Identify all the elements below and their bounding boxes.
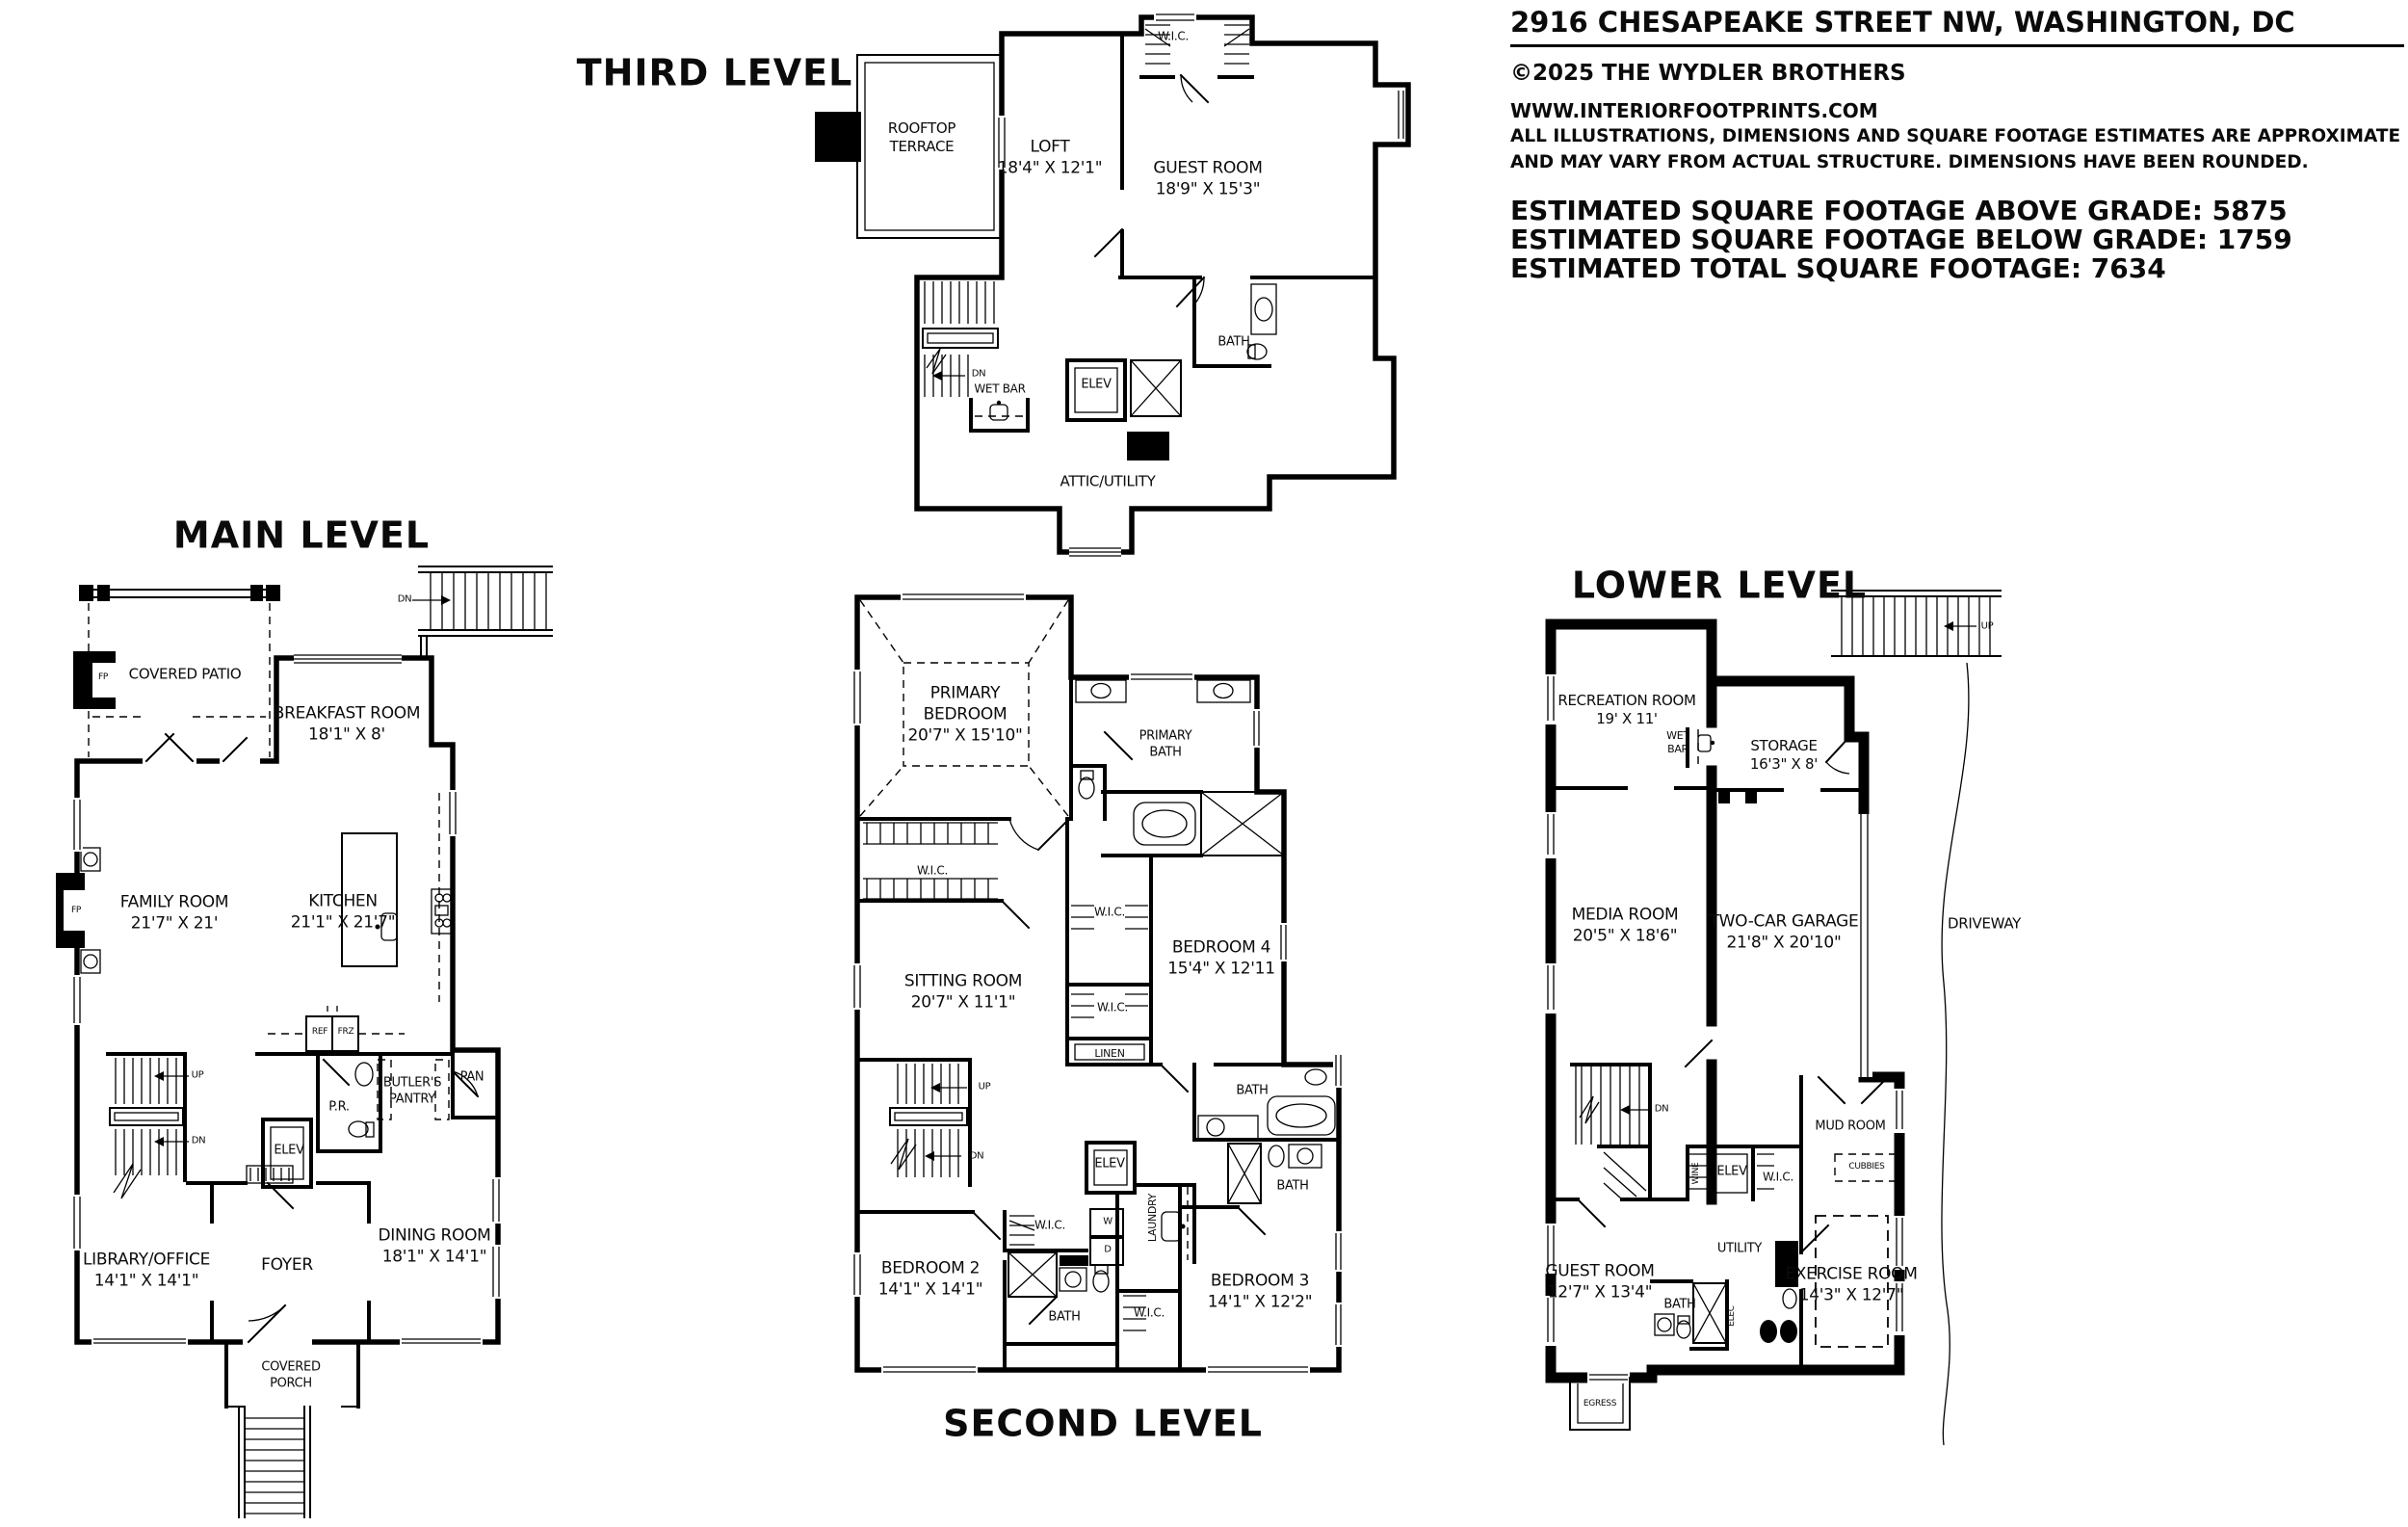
room-label-wic: W.I.C. bbox=[1094, 905, 1125, 919]
room-label-powder-room: P.R. bbox=[328, 1100, 349, 1117]
room-label-attic-utility: ATTIC/UTILITY bbox=[1060, 472, 1156, 490]
room-label-laundry: LAUNDRY bbox=[1146, 1194, 1160, 1242]
fireplace-label: FP bbox=[98, 672, 108, 684]
room-label-wic: W.I.C. bbox=[1034, 1218, 1065, 1232]
room-label-bath: BATH bbox=[1276, 1179, 1308, 1196]
area-label-driveway: DRIVEWAY bbox=[1948, 914, 2021, 933]
label-elec: ELEC bbox=[1727, 1305, 1739, 1326]
room-label-bath: BATH bbox=[1048, 1310, 1080, 1327]
room-label-rooftop-terrace: ROOFTOP TERRACE bbox=[888, 119, 955, 156]
room-label-wic: W.I.C. bbox=[1134, 1305, 1165, 1320]
room-label-covered-patio: COVERED PATIO bbox=[129, 665, 242, 683]
room-label-wic: W.I.C. bbox=[1158, 29, 1189, 43]
stair-label-up: UP bbox=[1981, 621, 1994, 634]
level-title-main: MAIN LEVEL bbox=[173, 513, 430, 560]
room-label-foyer: FOYER bbox=[261, 1255, 313, 1277]
room-labels-layer: THIRD LEVELROOFTOP TERRACELOFT 18'4" X 1… bbox=[0, 0, 2408, 1527]
room-label-sitting-room: SITTING ROOM 20'7" X 11'1" bbox=[904, 971, 1022, 1014]
stair-label-dn: DN bbox=[970, 1151, 984, 1164]
room-label-mud-room: MUD ROOM bbox=[1815, 1119, 1885, 1136]
room-label-primary-bedroom: PRIMARY BEDROOM 20'7" X 15'10" bbox=[908, 683, 1023, 746]
room-label-family-room: FAMILY ROOM 21'7" X 21' bbox=[120, 892, 228, 935]
room-label-kitchen: KITCHEN 21'1" X 21'7" bbox=[291, 891, 395, 934]
room-label-linen: LINEN bbox=[1094, 1047, 1124, 1061]
room-label-bedroom-2: BEDROOM 2 14'1" X 14'1" bbox=[878, 1258, 982, 1301]
level-title-second: SECOND LEVEL bbox=[943, 1401, 1263, 1448]
stair-label-up: UP bbox=[979, 1082, 991, 1094]
room-label-primary-bath: PRIMARY BATH bbox=[1139, 728, 1192, 760]
appliance-label-frz: FRZ bbox=[338, 1027, 354, 1039]
room-label-butlers-pantry: BUTLER'S PANTRY bbox=[383, 1075, 441, 1107]
room-label-wine: WINE bbox=[1691, 1163, 1703, 1185]
stair-label-dn: DN bbox=[972, 369, 986, 382]
room-label-pan: PAN bbox=[460, 1070, 484, 1087]
room-label-dining-room: DINING ROOM 18'1" X 14'1" bbox=[378, 1225, 490, 1268]
level-title-third: THIRD LEVEL bbox=[577, 50, 853, 97]
room-label-breakfast-room: BREAKFAST ROOM 18'1" X 8' bbox=[274, 703, 420, 746]
floor-plan-sheet: { "header": { "address": "2916 CHESAPEAK… bbox=[0, 0, 2408, 1527]
room-label-guest-room: GUEST ROOM 12'7" X 13'4" bbox=[1545, 1261, 1654, 1303]
label-cubbies: CUBBIES bbox=[1848, 1162, 1884, 1173]
room-label-two-car-garage: TWO-CAR GARAGE 21'8" X 20'10" bbox=[1710, 911, 1859, 954]
stair-label-dn: DN bbox=[192, 1136, 206, 1148]
room-label-wic: W.I.C. bbox=[917, 863, 948, 878]
appliance-label-dryer: D bbox=[1104, 1245, 1111, 1257]
label-egress: EGRESS bbox=[1584, 1399, 1616, 1410]
room-label-recreation-room: RECREATION ROOM 19' X 11' bbox=[1557, 692, 1695, 728]
stair-label-dn: DN bbox=[398, 594, 412, 607]
room-label-covered-porch: COVERED PORCH bbox=[261, 1359, 320, 1391]
room-label-guest-room: GUEST ROOM 18'9" X 15'3" bbox=[1153, 158, 1262, 200]
room-label-loft: LOFT 18'4" X 12'1" bbox=[998, 137, 1102, 179]
room-label-bedroom-3: BEDROOM 3 14'1" X 12'2" bbox=[1208, 1271, 1312, 1313]
room-label-elev: ELEV bbox=[1081, 378, 1111, 394]
room-label-media-room: MEDIA ROOM 20'5" X 18'6" bbox=[1572, 905, 1679, 947]
stair-label-up: UP bbox=[192, 1070, 204, 1083]
room-label-elev: ELEV bbox=[274, 1144, 303, 1160]
room-label-library-office: LIBRARY/OFFICE 14'1" X 14'1" bbox=[83, 1250, 210, 1292]
room-label-wet-bar: WET BAR bbox=[974, 382, 1025, 396]
room-label-wic: W.I.C. bbox=[1763, 1170, 1793, 1184]
room-label-exercise-room: EXERCISE ROOM 14'3" X 12'7" bbox=[1785, 1264, 1917, 1306]
room-label-wic: W.I.C. bbox=[1097, 1000, 1128, 1014]
room-label-wet-bar: WET BAR bbox=[1666, 729, 1689, 756]
room-label-bath: BATH bbox=[1663, 1298, 1695, 1314]
room-label-utility: UTILITY bbox=[1717, 1242, 1762, 1258]
fireplace-label: FP bbox=[71, 906, 81, 917]
room-label-bedroom-4: BEDROOM 4 15'4" X 12'11 bbox=[1167, 937, 1274, 980]
stair-label-dn: DN bbox=[1655, 1104, 1669, 1117]
room-label-bath: BATH bbox=[1236, 1084, 1268, 1100]
appliance-label-washer: W bbox=[1103, 1217, 1112, 1229]
room-label-storage: STORAGE 16'3" X 8' bbox=[1750, 737, 1818, 774]
room-label-bath: BATH bbox=[1217, 335, 1249, 352]
room-label-elev: ELEV bbox=[1094, 1157, 1124, 1173]
appliance-label-ref: REF bbox=[312, 1027, 327, 1039]
level-title-lower: LOWER LEVEL bbox=[1572, 563, 1867, 610]
room-label-elev: ELEV bbox=[1716, 1165, 1746, 1181]
